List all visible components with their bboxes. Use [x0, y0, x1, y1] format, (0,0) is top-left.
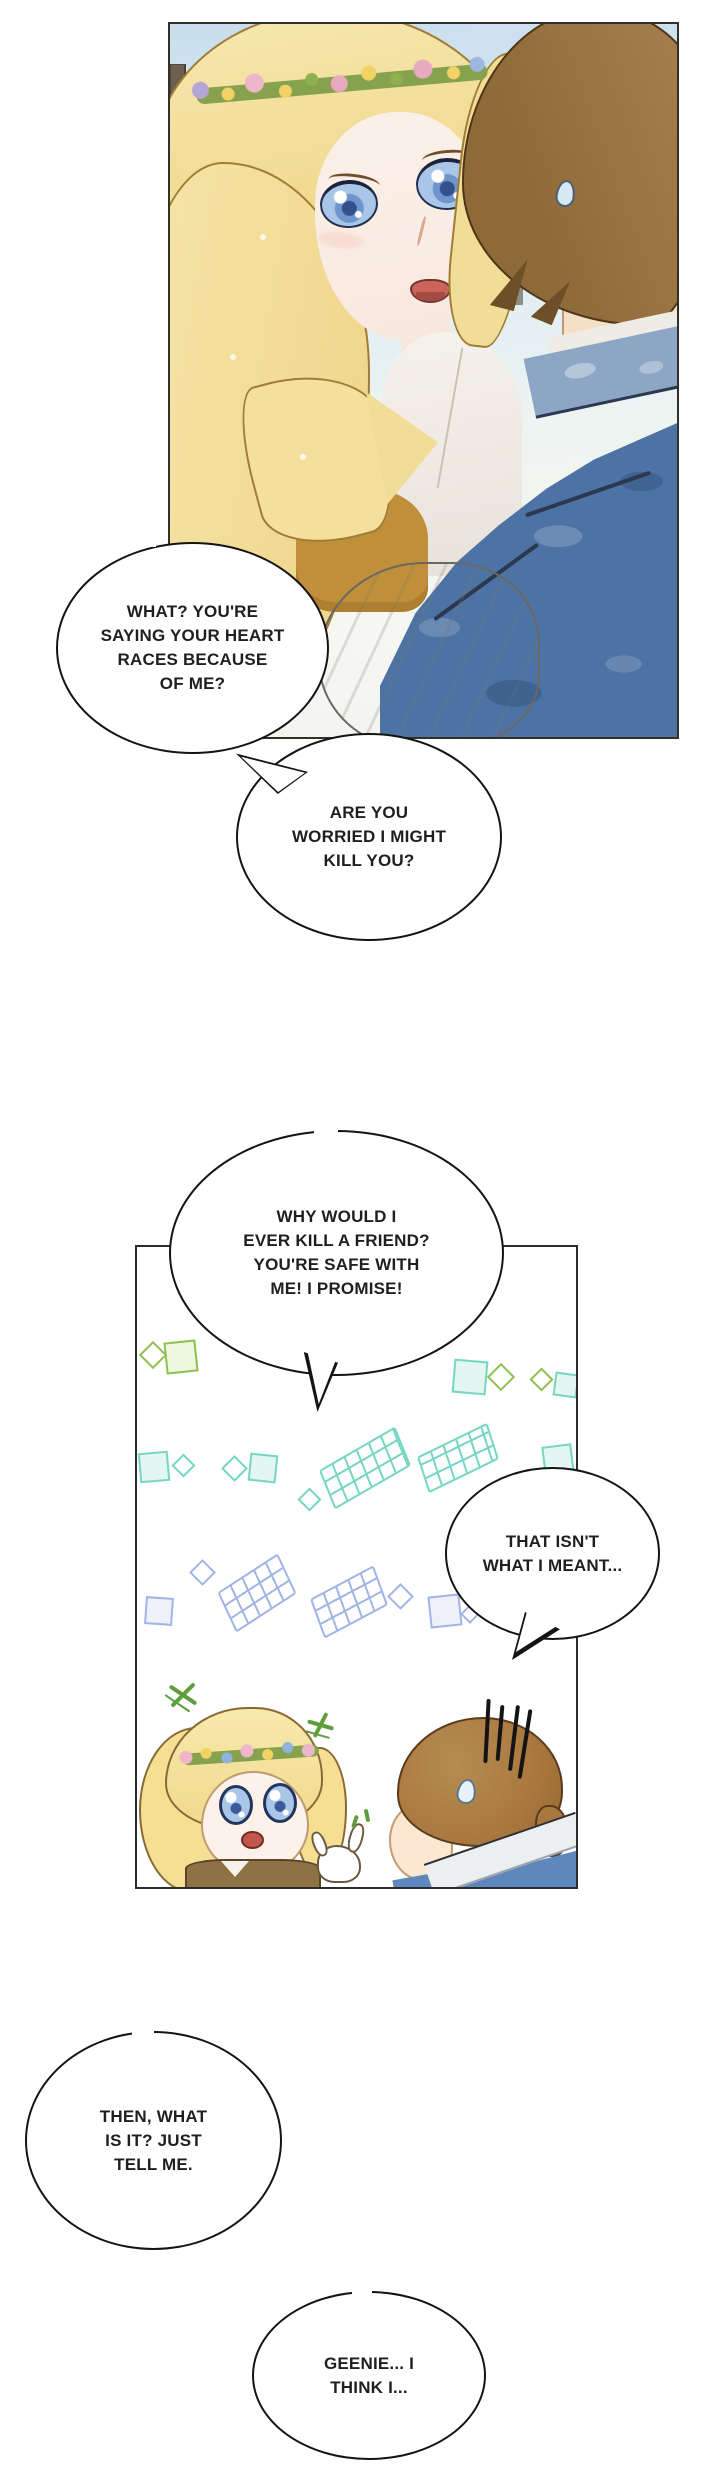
sparkle-diamond-icon: [487, 1363, 515, 1391]
bubble-text-line: WHAT I MEANT...: [483, 1554, 623, 1578]
bubble-text-line: YOU'RE SAFE WITH: [254, 1253, 420, 1277]
crosshatch-sparkle-icon: [217, 1553, 296, 1632]
crosshatch-sparkle-icon: [319, 1426, 411, 1509]
hair-sparkle-dot: [300, 454, 306, 460]
sparkle-square-icon: [163, 1339, 198, 1374]
sparkle-diamond-icon: [529, 1367, 553, 1391]
bubble-text-line: THAT ISN'T: [506, 1530, 600, 1554]
sparkle-diamond-icon: [387, 1583, 414, 1610]
speech-bubble-6: GEENIE... I THINK I...: [252, 2291, 486, 2460]
speech-bubble-3: WHY WOULD I EVER KILL A FRIEND? YOU'RE S…: [169, 1130, 504, 1376]
bubble-outline-gap: [314, 1128, 338, 1135]
crosshatch-sparkle-icon: [417, 1423, 499, 1494]
hair-sparkle-dot: [230, 354, 236, 360]
speech-bubble-1: WHAT? YOU'RE SAYING YOUR HEART RACES BEC…: [56, 542, 329, 754]
chibi-girl-left-eye: [219, 1785, 253, 1825]
bubble-text-line: EVER KILL A FRIEND?: [243, 1229, 429, 1253]
speech-bubble-5: THEN, WHAT IS IT? JUST TELL ME.: [25, 2031, 282, 2250]
bubble-text-line: SAYING YOUR HEART: [101, 624, 285, 648]
heroine-sleeve: [318, 562, 540, 739]
sparkle-x-icon: [164, 1676, 201, 1713]
bubble-text-line: ARE YOU: [330, 801, 409, 825]
sparkle-square-icon: [552, 1371, 578, 1398]
bubble-text-line: THEN, WHAT: [100, 2105, 207, 2129]
sparkle-diamond-icon: [221, 1455, 248, 1482]
emphasis-tick-icon: [364, 1809, 371, 1823]
sparkle-square-icon: [452, 1359, 489, 1396]
bubble-text-line: WORRIED I MIGHT: [292, 825, 446, 849]
chibi-girl-right-eye: [263, 1783, 297, 1823]
sparkle-square-icon: [427, 1593, 462, 1628]
bubble-text-line: ME! I PROMISE!: [270, 1277, 402, 1301]
chibi-girl-mouth: [241, 1831, 264, 1849]
bubble-text-line: WHY WOULD I: [277, 1205, 397, 1229]
sparkle-square-icon: [138, 1451, 171, 1484]
sparkle-diamond-icon: [297, 1487, 321, 1511]
bubble-text-line: THINK I...: [330, 2376, 408, 2400]
bubble-text-line: GEENIE... I: [324, 2352, 414, 2376]
bubble-text-line: OF ME?: [160, 672, 225, 696]
sparkle-diamond-icon: [189, 1559, 216, 1586]
bubble-text-line: RACES BECAUSE: [118, 648, 268, 672]
bubble-outline-gap: [136, 540, 156, 547]
chibi-girl-vest: [185, 1859, 321, 1889]
crosshatch-sparkle-icon: [310, 1565, 388, 1639]
bubble-text-line: WHAT? YOU'RE: [127, 600, 258, 624]
sparkle-diamond-icon: [171, 1453, 195, 1477]
bubble-outline-gap: [352, 2289, 372, 2296]
bubble-text-line: IS IT? JUST: [105, 2129, 202, 2153]
speech-bubble-4: THAT ISN'T WHAT I MEANT...: [445, 1467, 660, 1640]
hair-sparkle-dot: [260, 234, 266, 240]
sparkle-square-icon: [144, 1596, 174, 1626]
webtoon-page: WHAT? YOU'RE SAYING YOUR HEART RACES BEC…: [0, 0, 720, 2491]
bubble-text-line: TELL ME.: [114, 2153, 193, 2177]
sparkle-square-icon: [248, 1453, 279, 1484]
bubble-outline-gap: [132, 2029, 154, 2036]
bubble-text-line: KILL YOU?: [324, 849, 415, 873]
chibi-girl-pinky-finger: [345, 1822, 367, 1855]
